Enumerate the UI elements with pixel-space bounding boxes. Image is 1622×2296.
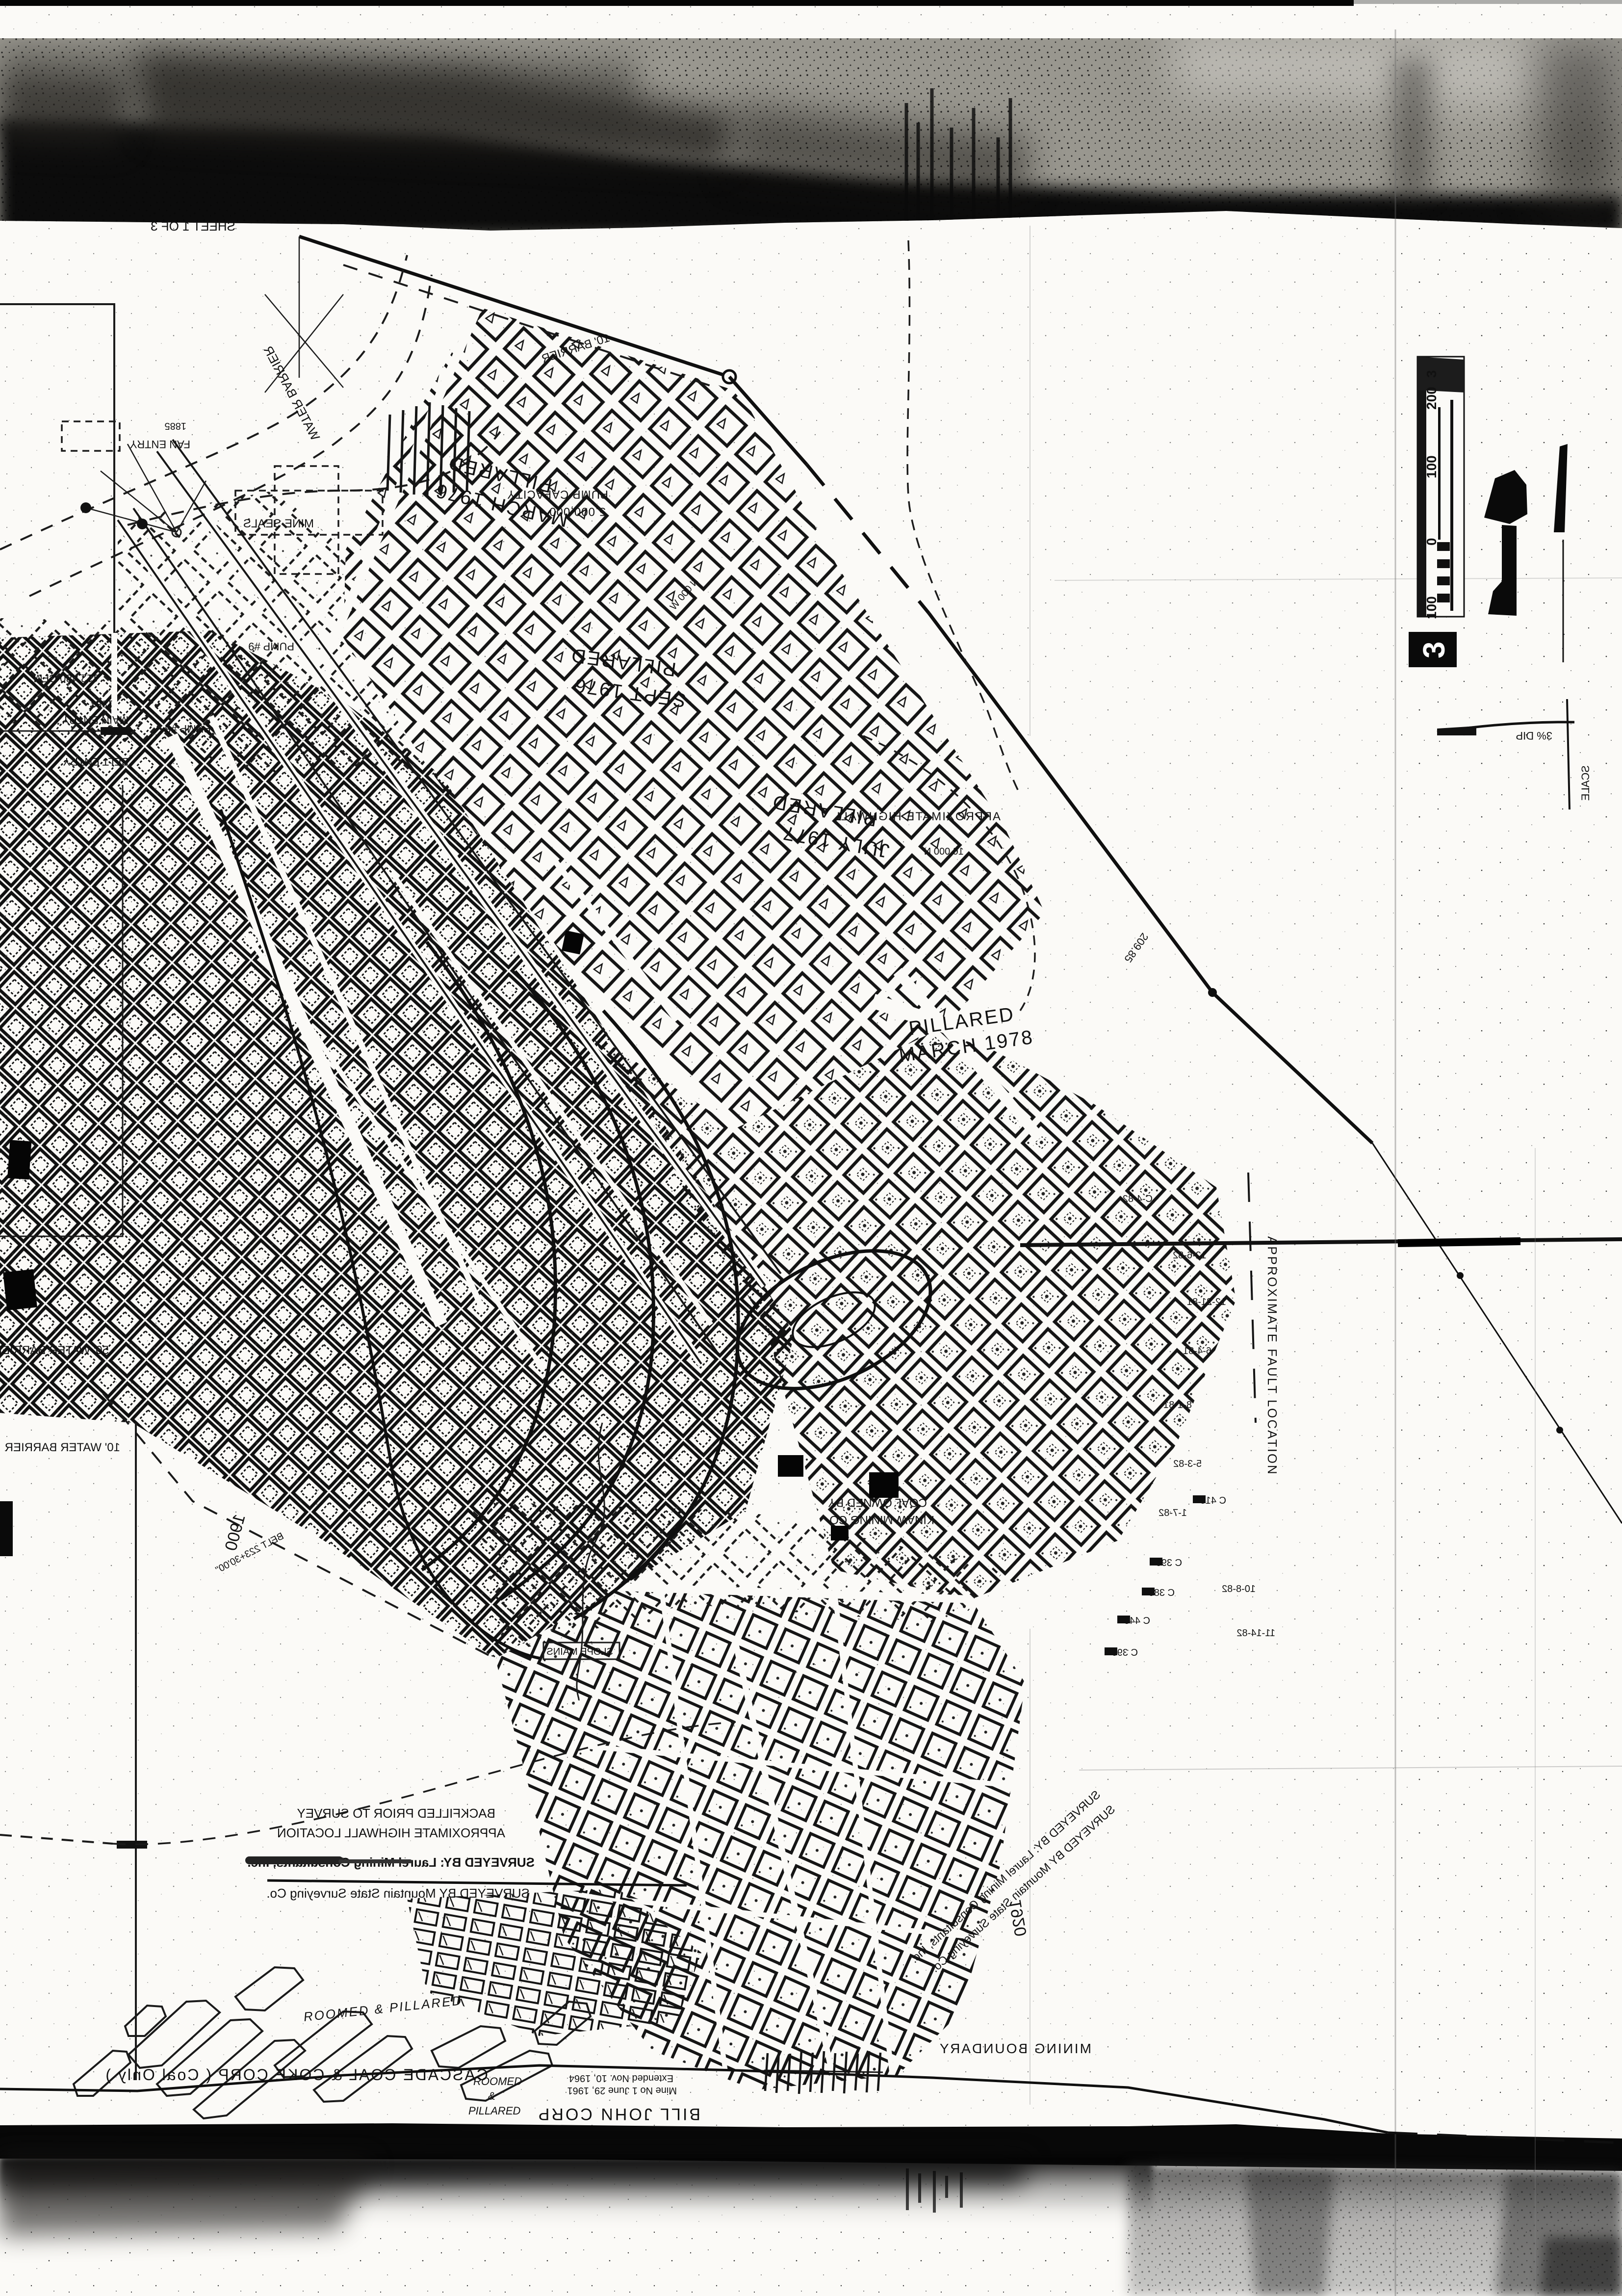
svg-text:100: 100 bbox=[1424, 596, 1439, 619]
svg-text:BELT ENTRY: BELT ENTRY bbox=[63, 756, 129, 768]
svg-text:MAIN ENTRY: MAIN ENTRY bbox=[62, 714, 129, 726]
svg-text:MINE SEALS: MINE SEALS bbox=[243, 517, 314, 530]
svg-text:APPROXIMATE HIGHWALL: APPROXIMATE HIGHWALL bbox=[832, 810, 1001, 823]
svg-text:&: & bbox=[488, 2090, 495, 2102]
svg-text:MINING BOUNDARY: MINING BOUNDARY bbox=[938, 2041, 1091, 2056]
svg-text:APPROXIMATE FAULT LOCATION: APPROXIMATE FAULT LOCATION bbox=[1265, 1236, 1280, 1476]
svg-text:C-4-82: C-4-82 bbox=[1123, 1194, 1153, 1204]
svg-text:ROOMED: ROOMED bbox=[473, 2075, 522, 2087]
svg-text:CASCADE COAL & COKE CORP ( Coa: CASCADE COAL & COKE CORP ( Coal Only ) bbox=[104, 2066, 488, 2084]
svg-text:1883: 1883 bbox=[91, 698, 113, 709]
svg-text:KINAW MINING CO: KINAW MINING CO bbox=[829, 1513, 934, 1526]
svg-text:APPROXIMATE HIGHWALL LOCATION: APPROXIMATE HIGHWALL LOCATION bbox=[277, 1826, 505, 1840]
svg-text:PUMP #8: PUMP #8 bbox=[165, 723, 211, 735]
svg-text:SURVEYED BY Mountain State Su: SURVEYED BY Mountain State Surveying Co. bbox=[266, 1886, 530, 1901]
svg-text:BACKFILLED PRIOR TO SURVEY: BACKFILLED PRIOR TO SURVEY bbox=[297, 1806, 495, 1821]
svg-text:100: 100 bbox=[1424, 455, 1439, 478]
svg-text:50' WATER BARRIER: 50' WATER BARRIER bbox=[0, 1344, 109, 1357]
svg-text:200: 200 bbox=[1424, 387, 1439, 410]
svg-text:SLOPE MAINS: SLOPE MAINS bbox=[546, 1646, 613, 1657]
svg-text:112,480 CFM: 112,480 CFM bbox=[33, 672, 98, 684]
svg-text:BILL JOHN CORP: BILL JOHN CORP bbox=[537, 2105, 700, 2123]
svg-text:11-14-82: 11-14-82 bbox=[1236, 1628, 1275, 1639]
svg-text:0: 0 bbox=[1424, 538, 1439, 546]
svg-text:16,000 N: 16,000 N bbox=[924, 846, 964, 857]
svg-text:Mine No 1 June 29, 1961: Mine No 1 June 29, 1961 bbox=[567, 2085, 677, 2096]
svg-text:PUMP CAPACITY: PUMP CAPACITY bbox=[507, 488, 608, 501]
svg-text:5,000,000: 5,000,000 bbox=[549, 505, 606, 518]
svg-text:Extended Nov. 10, 1964: Extended Nov. 10, 1964 bbox=[569, 2073, 673, 2084]
svg-text:5-3-82: 5-3-82 bbox=[1173, 1459, 1202, 1469]
svg-text:1-7-82: 1-7-82 bbox=[1159, 1508, 1187, 1518]
svg-text:12-6-82: 12-6-82 bbox=[1173, 1250, 1207, 1261]
svg-text:SHEET 1 OF 3: SHEET 1 OF 3 bbox=[151, 219, 235, 234]
svg-text:10-8-82: 10-8-82 bbox=[1222, 1584, 1256, 1594]
svg-text:3% DIP: 3% DIP bbox=[1516, 730, 1552, 742]
svg-text:8-1-81: 8-1-81 bbox=[1163, 1400, 1192, 1410]
svg-text:3: 3 bbox=[1424, 370, 1439, 378]
svg-text:12-21-81: 12-21-81 bbox=[1187, 1297, 1226, 1307]
svg-text:FAN ENTRY: FAN ENTRY bbox=[130, 438, 190, 450]
svg-text:3: 3 bbox=[1417, 642, 1451, 658]
svg-text:6-4-81: 6-4-81 bbox=[1183, 1346, 1211, 1357]
svg-text:1885: 1885 bbox=[165, 420, 187, 431]
svg-text:PUMP #9: PUMP #9 bbox=[248, 640, 294, 652]
svg-text:PILLARED: PILLARED bbox=[468, 2105, 520, 2117]
svg-text:COAL OWNED BY: COAL OWNED BY bbox=[828, 1496, 927, 1509]
svg-text:SCALE: SCALE bbox=[1579, 765, 1592, 801]
svg-text:10' WATER BARRIER: 10' WATER BARRIER bbox=[5, 1441, 120, 1454]
